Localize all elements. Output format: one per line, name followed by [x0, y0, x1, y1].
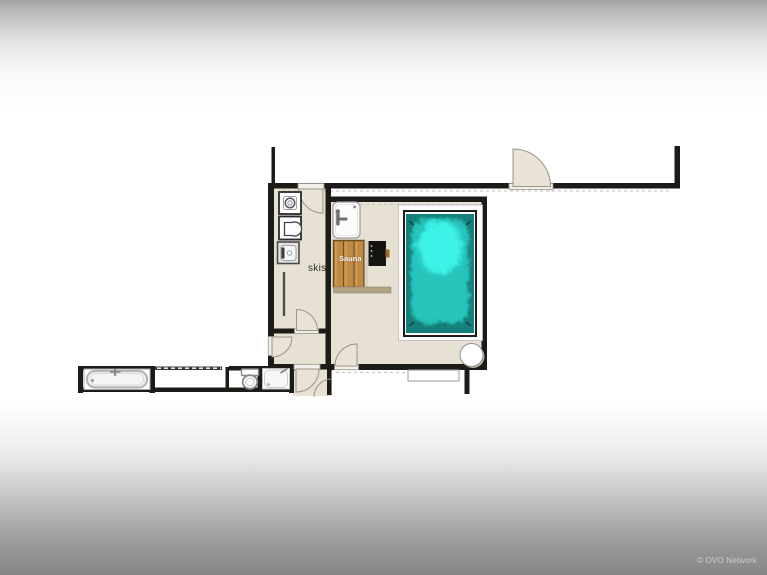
ski-room-label: skis — [308, 263, 326, 274]
wall-top-right-return — [675, 146, 681, 188]
pool-water-shallow — [418, 220, 462, 274]
shower-tray-icon — [333, 202, 360, 238]
door-top-entrance — [509, 149, 553, 190]
wall-stub-below-hall — [327, 369, 332, 395]
swimming-pool — [399, 205, 483, 341]
sauna-label: Sauna — [339, 254, 362, 263]
washing-machine-icon — [279, 192, 301, 214]
window-ledge — [408, 370, 459, 381]
sauna-glass-wall — [365, 241, 369, 288]
wall-stub-below-pool — [465, 370, 470, 394]
sauna-benches — [334, 241, 365, 288]
wall-ski-pool-divider — [326, 183, 332, 369]
shower-drain — [267, 383, 270, 386]
wall-stub-top-left — [272, 147, 276, 185]
laundry-sink-icon — [279, 217, 302, 240]
bathtub — [84, 369, 150, 390]
screenshot-background: skis S — [0, 0, 767, 575]
dryer-icon — [278, 242, 300, 264]
wall-stub-corridor — [226, 367, 230, 390]
watermark-text: © OVO Network — [697, 556, 758, 565]
sauna-bench-front — [334, 287, 392, 293]
shower — [263, 369, 290, 390]
toilet — [242, 369, 259, 389]
wall-pool-top — [331, 197, 487, 203]
bathtub-drain — [91, 379, 94, 382]
floor-plan: skis S — [0, 0, 767, 575]
wall-top — [271, 183, 680, 189]
